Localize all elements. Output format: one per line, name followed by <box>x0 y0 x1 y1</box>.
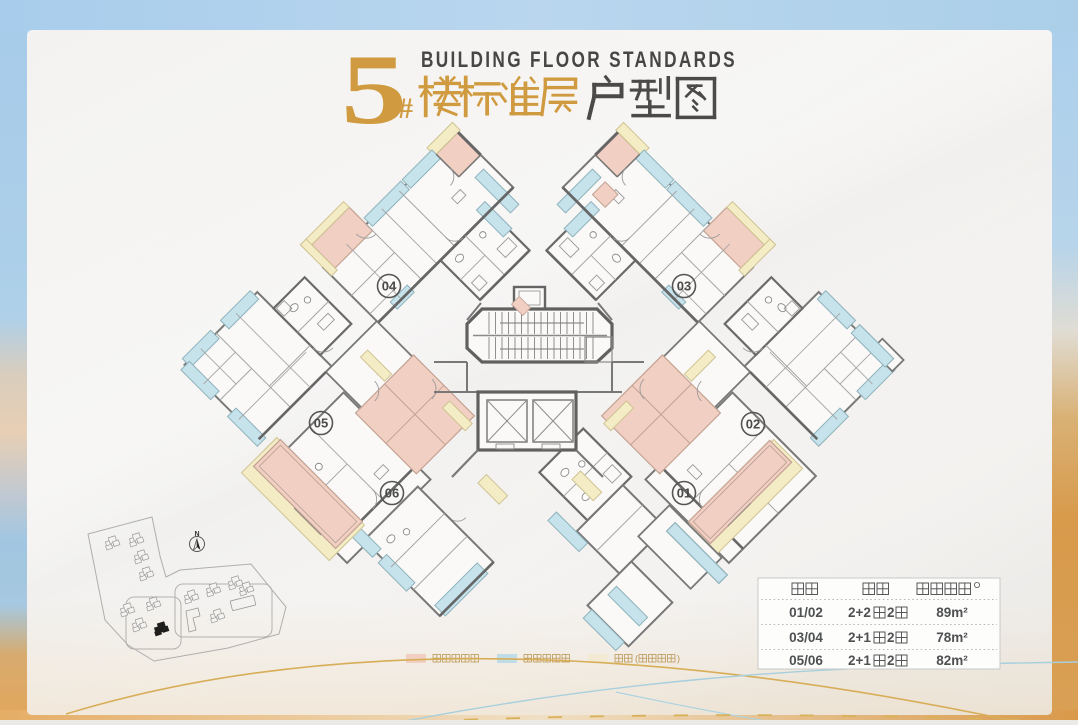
svg-text:5: 5 <box>341 34 407 145</box>
svg-text:): ) <box>677 654 680 664</box>
svg-text:2: 2 <box>887 653 895 668</box>
svg-text:#: # <box>398 92 413 125</box>
svg-text:2+1: 2+1 <box>848 630 871 645</box>
svg-text:(: ( <box>635 654 638 664</box>
svg-text:01: 01 <box>677 486 691 501</box>
svg-text:89m²: 89m² <box>936 605 968 620</box>
svg-text:03/04: 03/04 <box>789 630 823 645</box>
svg-text:N: N <box>194 531 199 538</box>
svg-text:05/06: 05/06 <box>789 653 823 668</box>
svg-text:05: 05 <box>314 416 328 431</box>
svg-text:03: 03 <box>677 279 691 294</box>
svg-text:2+2: 2+2 <box>848 605 871 620</box>
svg-text:2: 2 <box>887 605 895 620</box>
svg-text:82m²: 82m² <box>936 653 968 668</box>
svg-text:01/02: 01/02 <box>789 605 823 620</box>
svg-text:04: 04 <box>382 279 397 294</box>
svg-text:2: 2 <box>887 630 895 645</box>
svg-text:02: 02 <box>746 417 760 432</box>
svg-text:2+1: 2+1 <box>848 653 871 668</box>
svg-text:BUILDING FLOOR STANDARDS: BUILDING FLOOR STANDARDS <box>421 47 737 72</box>
svg-text:78m²: 78m² <box>936 630 968 645</box>
svg-text:06: 06 <box>385 486 399 501</box>
